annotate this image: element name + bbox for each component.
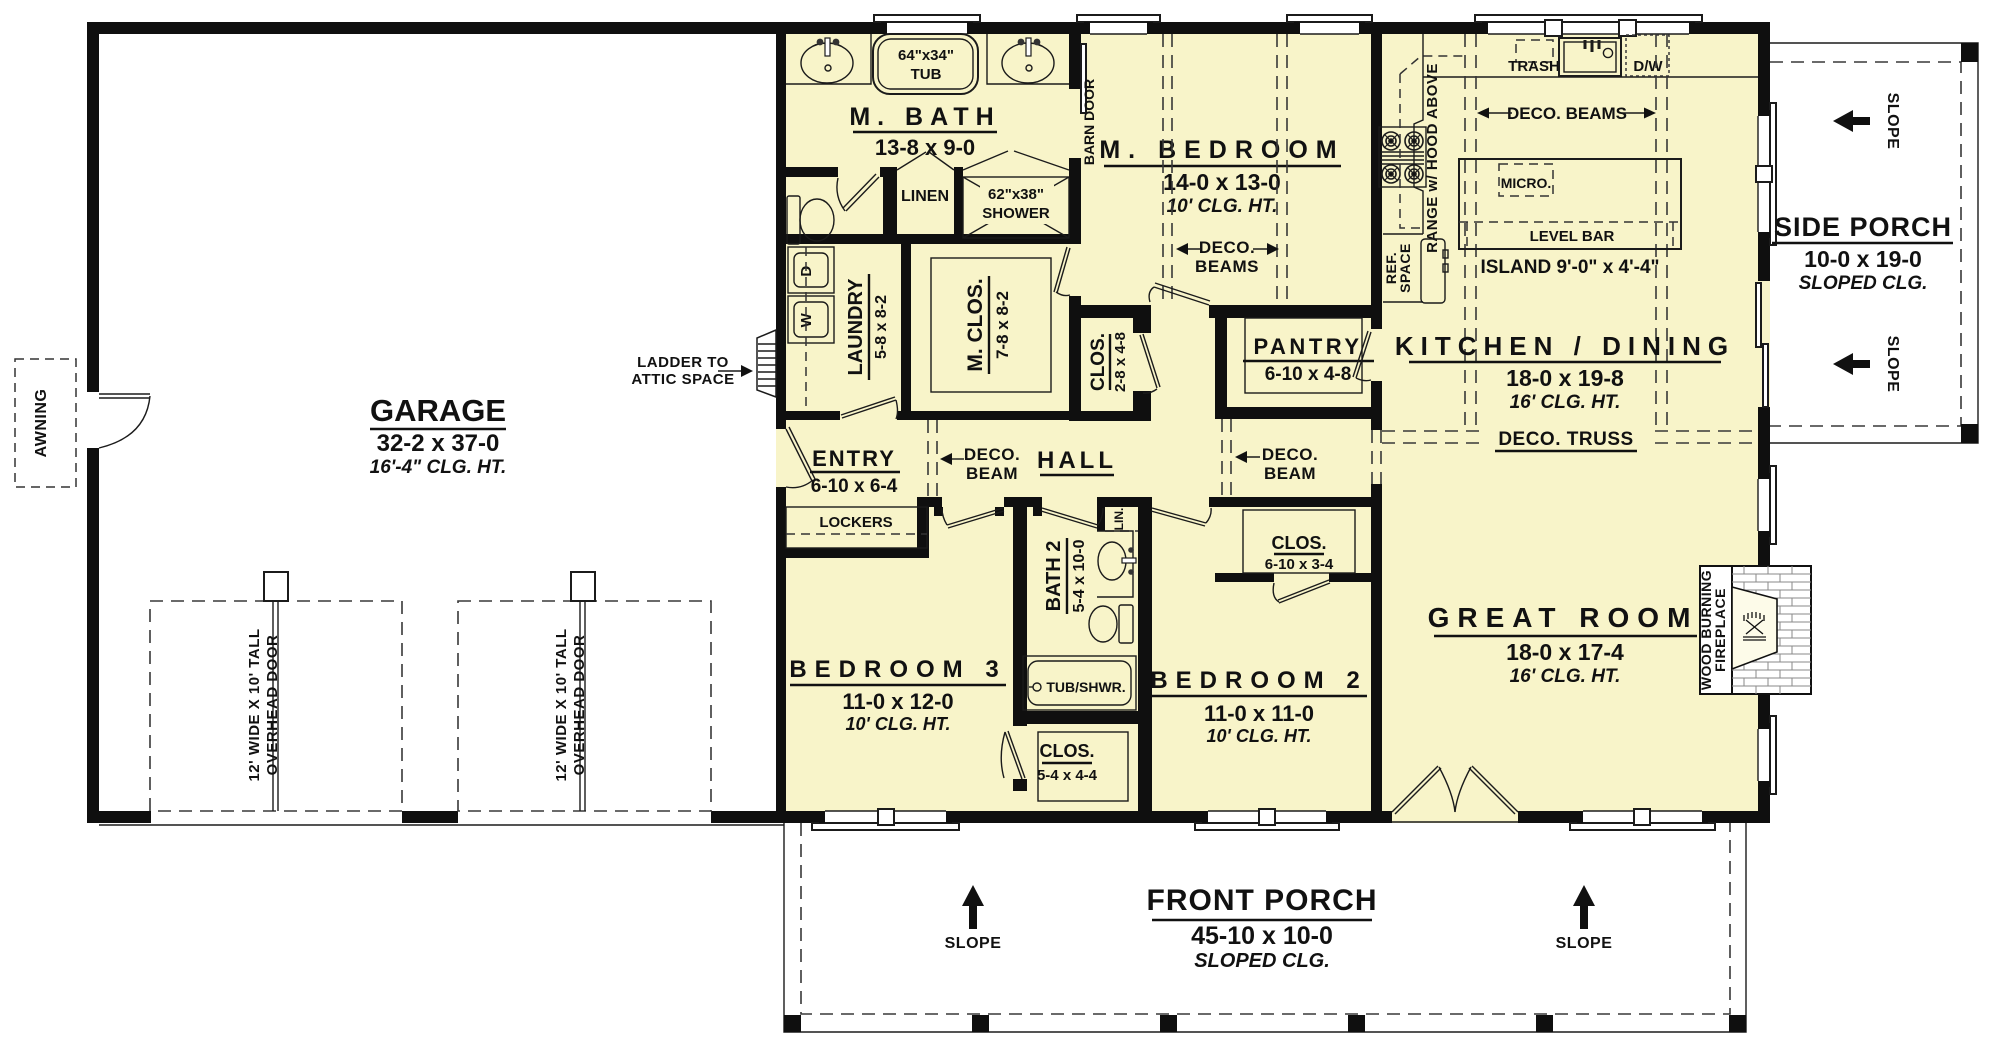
svg-text:LIN.: LIN. [1112, 508, 1126, 531]
svg-text:HALL: HALL [1037, 447, 1117, 474]
svg-text:BEAMS: BEAMS [1195, 257, 1259, 276]
svg-text:TUB: TUB [911, 66, 942, 83]
svg-text:SIDE PORCH: SIDE PORCH [1774, 212, 1952, 242]
svg-text:CLOS.: CLOS. [1271, 533, 1326, 553]
svg-text:ATTIC SPACE: ATTIC SPACE [631, 371, 734, 388]
svg-text:LOCKERS: LOCKERS [819, 514, 892, 531]
svg-text:AWNING: AWNING [33, 389, 50, 458]
svg-text:BARN DOOR: BARN DOOR [1081, 79, 1097, 165]
svg-text:LAUNDRY: LAUNDRY [845, 278, 867, 376]
svg-text:6-10 x 4-8: 6-10 x 4-8 [1265, 364, 1352, 385]
svg-text:DECO. BEAMS: DECO. BEAMS [1507, 104, 1627, 123]
svg-text:6-10 x 6-4: 6-10 x 6-4 [811, 476, 898, 497]
svg-text:DECO.: DECO. [1199, 238, 1255, 257]
svg-text:BEDROOM 3: BEDROOM 3 [789, 656, 1006, 683]
svg-text:12' WIDE X 10' TALL: 12' WIDE X 10' TALL [553, 628, 570, 781]
svg-text:5-8 x 8-2: 5-8 x 8-2 [873, 295, 890, 359]
svg-text:SHOWER: SHOWER [982, 205, 1050, 222]
svg-text:18-0 x 19-8: 18-0 x 19-8 [1506, 365, 1624, 391]
svg-text:LADDER TO: LADDER TO [637, 354, 729, 371]
svg-text:GARAGE: GARAGE [370, 393, 506, 428]
svg-text:SLOPE: SLOPE [945, 935, 1002, 952]
svg-text:BEAM: BEAM [1264, 464, 1316, 483]
svg-text:12' WIDE X 10' TALL: 12' WIDE X 10' TALL [246, 628, 263, 781]
svg-text:FIREPLACE: FIREPLACE [1712, 588, 1728, 672]
svg-text:SLOPED CLG.: SLOPED CLG. [1194, 950, 1330, 972]
svg-text:D/W: D/W [1633, 58, 1663, 75]
svg-text:CLOS.: CLOS. [1088, 333, 1109, 391]
svg-text:16'-4" CLG. HT.: 16'-4" CLG. HT. [370, 457, 507, 478]
svg-text:PANTRY: PANTRY [1254, 334, 1363, 359]
svg-text:16' CLG. HT.: 16' CLG. HT. [1510, 392, 1621, 413]
svg-text:OVERHEAD DOOR: OVERHEAD DOOR [571, 635, 588, 776]
svg-text:45-10 x 10-0: 45-10 x 10-0 [1191, 922, 1333, 950]
svg-text:11-0 x 11-0: 11-0 x 11-0 [1204, 701, 1314, 726]
svg-text:DECO.: DECO. [1262, 445, 1318, 464]
svg-text:SLOPE: SLOPE [1556, 935, 1613, 952]
svg-text:ISLAND 9'-0" x 4'-4": ISLAND 9'-0" x 4'-4" [1480, 257, 1659, 278]
svg-text:5-4 x 10-0: 5-4 x 10-0 [1071, 539, 1088, 612]
svg-text:6-10 x 3-4: 6-10 x 3-4 [1265, 556, 1334, 573]
svg-text:16' CLG. HT.: 16' CLG. HT. [1510, 666, 1621, 687]
svg-text:KITCHEN / DINING: KITCHEN / DINING [1395, 331, 1735, 361]
svg-text:OVERHEAD DOOR: OVERHEAD DOOR [264, 635, 281, 776]
svg-text:M. CLOS.: M. CLOS. [964, 278, 987, 371]
svg-text:SLOPE: SLOPE [1884, 93, 1901, 150]
svg-text:7-8 x 8-2: 7-8 x 8-2 [993, 291, 1012, 359]
svg-text:TUB/SHWR.: TUB/SHWR. [1046, 679, 1125, 695]
svg-text:MICRO.: MICRO. [1501, 175, 1552, 191]
svg-text:ENTRY: ENTRY [812, 446, 896, 471]
svg-text:SLOPE: SLOPE [1884, 336, 1901, 393]
svg-text:64"x34": 64"x34" [898, 47, 954, 64]
svg-text:DECO.: DECO. [964, 445, 1020, 464]
svg-text:13-8 x 9-0: 13-8 x 9-0 [875, 135, 975, 160]
svg-text:10' CLG. HT.: 10' CLG. HT. [1167, 196, 1278, 217]
svg-text:5-4 x 4-4: 5-4 x 4-4 [1037, 767, 1098, 784]
svg-text:14-0 x 13-0: 14-0 x 13-0 [1163, 169, 1281, 195]
svg-text:CLOS.: CLOS. [1039, 741, 1094, 761]
svg-text:SLOPED CLG.: SLOPED CLG. [1799, 273, 1928, 294]
svg-text:FRONT PORCH: FRONT PORCH [1147, 884, 1378, 917]
svg-text:10' CLG. HT.: 10' CLG. HT. [1207, 726, 1312, 746]
svg-text:11-0 x 12-0: 11-0 x 12-0 [842, 689, 953, 714]
svg-text:LEVEL BAR: LEVEL BAR [1530, 228, 1615, 245]
svg-text:BEAM: BEAM [966, 464, 1018, 483]
svg-text:10-0 x 19-0: 10-0 x 19-0 [1804, 246, 1922, 272]
svg-text:2-8 x 4-8: 2-8 x 4-8 [1112, 332, 1129, 392]
svg-text:RANGE w/ HOOD ABOVE: RANGE w/ HOOD ABOVE [1424, 63, 1441, 253]
svg-text:32-2 x 37-0: 32-2 x 37-0 [377, 430, 500, 457]
svg-text:M. BEDROOM: M. BEDROOM [1099, 136, 1344, 164]
svg-text:10' CLG. HT.: 10' CLG. HT. [846, 714, 951, 734]
svg-text:18-0 x 17-4: 18-0 x 17-4 [1506, 639, 1624, 665]
svg-text:BATH 2: BATH 2 [1043, 541, 1065, 612]
svg-text:62"x38": 62"x38" [988, 186, 1044, 203]
svg-text:BEDROOM 2: BEDROOM 2 [1150, 667, 1367, 694]
svg-text:SPACE: SPACE [1397, 243, 1413, 293]
svg-text:LINEN: LINEN [901, 188, 949, 205]
svg-text:GREAT ROOM: GREAT ROOM [1428, 602, 1699, 633]
svg-text:DECO. TRUSS: DECO. TRUSS [1498, 429, 1633, 450]
svg-text:M. BATH: M. BATH [849, 103, 1000, 131]
svg-text:TRASH: TRASH [1508, 58, 1560, 75]
